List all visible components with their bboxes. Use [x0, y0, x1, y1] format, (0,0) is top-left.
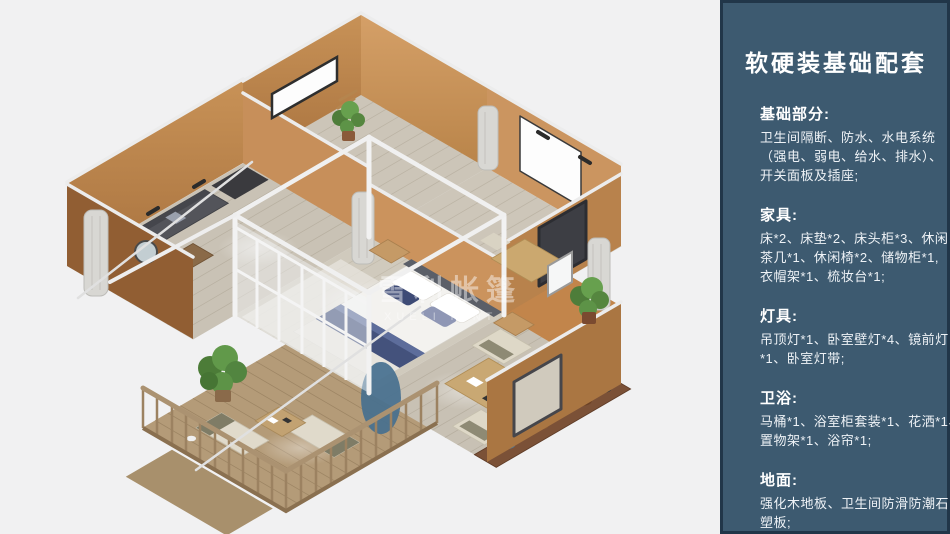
section-line: 开关面板及插座; [760, 166, 933, 185]
section-line: （强电、弱电、给水、排水）、 [760, 147, 933, 166]
section-line: 塑板; [760, 513, 933, 532]
panel-title: 软硬装基础配套 [745, 44, 933, 78]
section-flooring: 地面: 强化木地板、卫生间防滑防潮石 塑板; [760, 469, 933, 532]
section-line: 茶几*1、休闲椅*2、储物柜*1, [760, 248, 933, 267]
section-line: 吊顶灯*1、卧室壁灯*4、镜前灯 [760, 330, 933, 349]
section-heading: 家具: [760, 204, 933, 225]
section-line: 置物架*1、浴帘*1; [760, 431, 933, 450]
section-line: 床*2、床垫*2、床头柜*3、休闲 [760, 229, 933, 248]
section-line: 卫生间隔断、防水、水电系统 [760, 128, 933, 147]
watermark-cn: 雪利帐篷 [378, 273, 522, 307]
spec-panel: 软硬装基础配套 基础部分: 卫生间隔断、防水、水电系统 （强电、弱电、给水、排水… [720, 0, 950, 534]
section-bathroom: 卫浴: 马桶*1、浴室柜套装*1、花洒*1、 置物架*1、浴帘*1; [760, 387, 933, 450]
section-line: 强化木地板、卫生间防滑防潮石 [760, 494, 933, 513]
section-line: *1、卧室灯带; [760, 349, 933, 368]
curtain [478, 106, 498, 170]
section-basics: 基础部分: 卫生间隔断、防水、水电系统 （强电、弱电、给水、排水）、 开关面板及… [760, 103, 933, 185]
section-furniture: 家具: 床*2、床垫*2、床头柜*3、休闲 茶几*1、休闲椅*2、储物柜*1, … [760, 204, 933, 286]
section-heading: 卫浴: [760, 387, 933, 408]
section-line: 马桶*1、浴室柜套装*1、花洒*1、 [760, 412, 933, 431]
watermark-en: XUELI TENT [384, 311, 497, 323]
section-heading: 地面: [760, 469, 933, 490]
section-heading: 灯具: [760, 305, 933, 326]
section-heading: 基础部分: [760, 103, 933, 124]
section-lighting: 灯具: 吊顶灯*1、卧室壁灯*4、镜前灯 *1、卧室灯带; [760, 305, 933, 368]
floorplan-render: 雪利帐篷 XUELI TENT [0, 0, 720, 534]
section-line: 衣帽架*1、梳妆台*1; [760, 267, 933, 286]
